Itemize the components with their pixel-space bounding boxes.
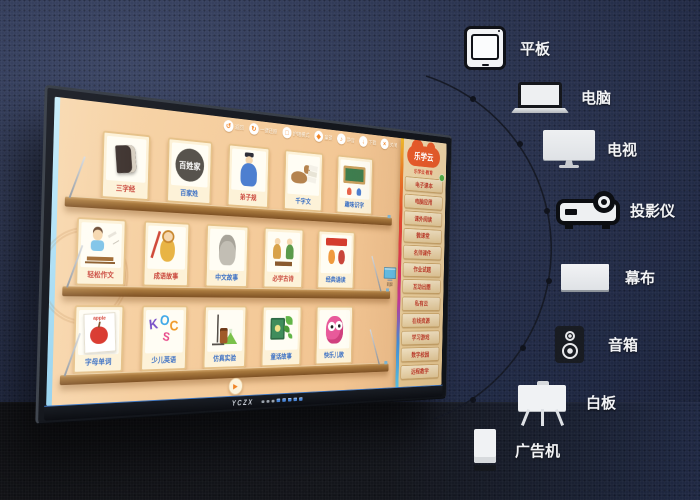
close-button[interactable]: ×关闭 xyxy=(380,138,397,150)
app-card-label: 经典诵读 xyxy=(326,274,346,284)
app-card-label: 快乐儿歌 xyxy=(324,350,344,360)
app-card-label: 必学古诗 xyxy=(272,273,293,283)
app-main-area: ↺返回 ↻一键还原 □护眼模式 ◆童锁 ♪静音 ↓下载 ×关闭 三字经 xyxy=(52,97,401,405)
toolbar-label: 护眼模式 xyxy=(293,130,310,140)
lock-icon: ◆ xyxy=(314,130,323,142)
sidebar-item-courseware[interactable]: 名师课件 xyxy=(403,245,441,261)
device-label: 投影仪 xyxy=(630,200,675,221)
app-card[interactable]: apple 字母单词 xyxy=(73,305,124,374)
sidebar-collapse-toggle[interactable] xyxy=(439,174,445,182)
device-speaker: 音箱 xyxy=(555,326,638,363)
app-card[interactable]: 轻松作文 xyxy=(75,217,126,286)
mute-button[interactable]: ♪静音 xyxy=(337,133,355,146)
device-tv: 电视 xyxy=(543,130,637,168)
bezel-button[interactable] xyxy=(294,398,298,402)
app-card[interactable]: 中文故事 xyxy=(205,224,249,288)
sidebar-item-reading[interactable]: 课外阅读 xyxy=(404,210,442,227)
app-card-label: 仿真实验 xyxy=(213,353,236,364)
back-icon: ↺ xyxy=(223,120,233,133)
device-label: 幕布 xyxy=(625,267,655,288)
toolbar-label: 关闭 xyxy=(390,141,397,149)
sidebar-item-digital-campus[interactable]: 数字校园 xyxy=(401,347,440,362)
monkey-king-icon xyxy=(147,225,186,269)
mini-monitor-label: 同屏 xyxy=(384,282,396,288)
laptop-icon xyxy=(511,82,569,113)
app-card[interactable]: 趣味识字 xyxy=(336,155,373,216)
child-lock-button[interactable]: ◆童锁 xyxy=(314,130,332,143)
download-icon: ↓ xyxy=(359,136,368,148)
app-card[interactable]: 快乐儿歌 xyxy=(315,306,353,365)
plant-board-icon xyxy=(265,310,299,350)
app-card[interactable]: 必学古诗 xyxy=(263,227,304,289)
app-card[interactable]: 三字经 xyxy=(101,131,151,202)
next-page-button[interactable]: ▶ xyxy=(228,378,243,396)
app-card-label: 千字文 xyxy=(295,196,311,206)
surname-seal-icon: 百姓家 xyxy=(171,143,209,188)
device-label: 音箱 xyxy=(608,334,638,355)
shelf-mount xyxy=(386,288,389,291)
apple-word-icon: apple xyxy=(78,310,120,355)
bezel-port xyxy=(272,399,275,402)
sidebar-item-private-cloud[interactable]: 私有云 xyxy=(402,296,440,310)
shelf-bracket xyxy=(370,329,380,365)
app-card[interactable]: 弟子规 xyxy=(227,144,270,209)
bezel-button[interactable] xyxy=(282,398,286,402)
app-sidebar: 乐学云 乐学云·教育 电子课本 电脑应用 课外阅读 微课堂 名师课件 作业试题 … xyxy=(395,138,446,387)
board-bezel: ↺返回 ↻一键还原 □护眼模式 ◆童锁 ♪静音 ↓下载 ×关闭 三字经 xyxy=(35,85,452,425)
back-button[interactable]: ↺返回 xyxy=(223,120,244,134)
app-card-label: 中文故事 xyxy=(215,272,238,282)
sidebar-item-learning-games[interactable]: 学习游戏 xyxy=(401,330,440,345)
toolbar-label: 下载 xyxy=(369,138,377,146)
tablet-icon xyxy=(464,26,506,70)
app-card[interactable]: 百姓家 百家姓 xyxy=(166,138,212,206)
shelf-row-3: apple 字母单词 KOCS 少儿英语 仿真实验 xyxy=(52,298,397,388)
scholar-icon xyxy=(231,149,266,193)
brand-logo-text: 乐学云 xyxy=(407,145,440,169)
smart-board: ↺返回 ↻一键还原 □护眼模式 ◆童锁 ♪静音 ↓下载 ×关闭 三字经 xyxy=(35,85,452,425)
device-ad-kiosk: 广告机 xyxy=(474,429,560,471)
tv-icon xyxy=(543,130,595,168)
scene: { "palette": { "background_navy": "#2b34… xyxy=(0,0,700,500)
sidebar-item-online-resources[interactable]: 在线资源 xyxy=(402,313,441,327)
app-card[interactable]: 仿真实验 xyxy=(203,306,247,370)
toolbar-label: 返回 xyxy=(235,123,244,132)
download-button[interactable]: ↓下载 xyxy=(359,136,376,149)
book-icon xyxy=(106,136,147,183)
display-icon: □ xyxy=(282,127,291,139)
app-card[interactable]: 千字文 xyxy=(283,150,323,213)
app-card-label: 弟子规 xyxy=(240,192,257,203)
sidebar-item-pc-apps[interactable]: 电脑应用 xyxy=(404,193,442,210)
app-card[interactable]: KOCS 少儿英语 xyxy=(140,305,188,371)
whiteboard-icon xyxy=(514,379,570,425)
restore-button[interactable]: ↻一键还原 xyxy=(249,123,278,138)
sidebar-menu: 电子课本 电脑应用 课外阅读 微课堂 名师课件 作业试题 互动出题 私有云 在线… xyxy=(396,176,446,380)
bezel-button[interactable] xyxy=(277,399,281,403)
brand-logo: YCZX xyxy=(232,398,254,407)
bezel-port xyxy=(267,400,270,403)
device-computer: 电脑 xyxy=(511,82,611,113)
writing-boy-icon xyxy=(80,222,122,268)
device-projector: 投影仪 xyxy=(556,191,675,229)
device-label: 平板 xyxy=(520,38,550,59)
speaker-icon xyxy=(555,326,584,363)
device-tablet: 平板 xyxy=(464,26,550,70)
sidebar-item-micro-class[interactable]: 微课堂 xyxy=(403,228,441,244)
app-card-label: 趣味识字 xyxy=(345,200,365,210)
sidebar-item-homework[interactable]: 作业试题 xyxy=(403,262,441,277)
toolbar-label: 童锁 xyxy=(324,133,332,141)
toolbar-label: 静音 xyxy=(347,136,355,144)
app-card[interactable]: 经典诵读 xyxy=(317,229,355,289)
device-label: 白板 xyxy=(586,392,616,413)
app-card-label: 童话故事 xyxy=(270,351,291,361)
device-label: 广告机 xyxy=(515,440,560,461)
bezel-button[interactable] xyxy=(288,398,292,402)
device-label: 电脑 xyxy=(581,87,611,108)
brand-cloud-logo: 乐学云 xyxy=(407,145,440,169)
classic-recital-icon xyxy=(321,234,352,274)
eye-care-button[interactable]: □护眼模式 xyxy=(282,127,309,141)
sound-icon: ♪ xyxy=(337,133,346,145)
projection-screen-icon xyxy=(561,264,609,290)
play-icon: ▶ xyxy=(233,382,238,390)
close-icon: × xyxy=(380,138,388,149)
app-card-label: 轻松作文 xyxy=(87,269,114,280)
shelf-bracket xyxy=(371,256,381,292)
restore-icon: ↻ xyxy=(249,123,259,136)
lab-experiment-icon xyxy=(207,310,243,352)
sidebar-item-quiz[interactable]: 互动出题 xyxy=(402,279,440,294)
mini-monitor-icon xyxy=(384,267,397,279)
shelf-bracket xyxy=(69,157,86,199)
english-letters-icon: KOCS xyxy=(145,310,184,353)
device-label: 电视 xyxy=(607,139,637,160)
ad-kiosk-icon xyxy=(474,429,496,471)
shelf-mount xyxy=(388,215,391,218)
story-figure-icon xyxy=(209,228,245,271)
toolbar-label: 一键还原 xyxy=(260,126,277,136)
pink-monster-icon xyxy=(319,310,350,349)
horse-books-icon xyxy=(287,154,320,196)
projector-icon xyxy=(556,191,622,229)
board-screen: ↺返回 ↻一键还原 □护眼模式 ◆童锁 ♪静音 ↓下载 ×关闭 三字经 xyxy=(46,97,446,406)
shelf-mount xyxy=(384,361,387,364)
app-card[interactable]: 童话故事 xyxy=(261,306,302,367)
device-projection-screen: 幕布 xyxy=(561,264,655,290)
screen-mirror-shortcut[interactable]: 同屏 xyxy=(384,267,397,287)
shelf-rows: 三字经 百姓家 百家姓 弟子规 xyxy=(52,119,400,387)
go-players-icon xyxy=(267,231,300,272)
app-card-label: 成语故事 xyxy=(154,270,179,281)
app-card-label: 三字经 xyxy=(116,183,136,195)
app-card-label: 百家姓 xyxy=(180,188,198,199)
bezel-button[interactable] xyxy=(299,397,303,401)
sidebar-item-remote-teaching[interactable]: 远程教学 xyxy=(400,363,439,379)
bezel-port xyxy=(262,400,265,403)
device-whiteboard: 白板 xyxy=(514,379,616,425)
app-card-label: 少儿英语 xyxy=(151,354,176,365)
app-card-label: 字母单词 xyxy=(85,356,112,367)
chalkboard-icon xyxy=(340,160,370,200)
sidebar-item-ebooks[interactable]: 电子课本 xyxy=(405,176,443,194)
app-card[interactable]: 成语故事 xyxy=(143,220,190,287)
